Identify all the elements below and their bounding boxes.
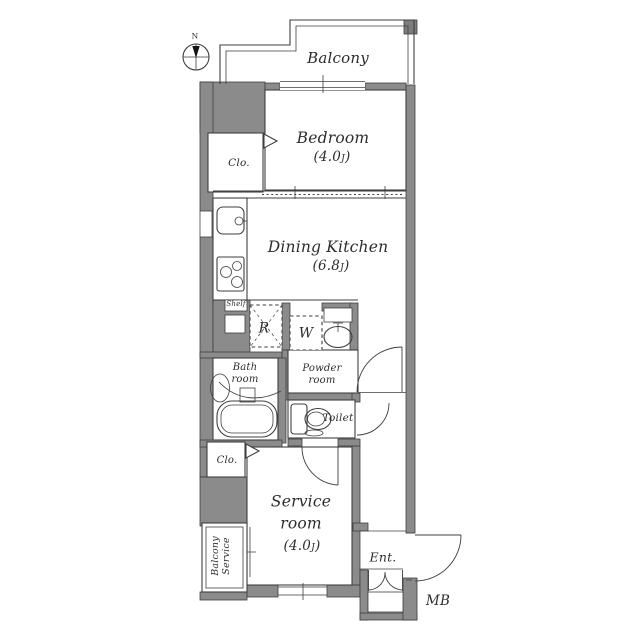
powder-room-label: Powderroom: [302, 363, 341, 387]
toilet-door: [357, 403, 389, 435]
washer-label: W: [299, 326, 314, 343]
floor-plan: Balcony N Bedroom (4.0J) Clo. Dining Kit…: [0, 0, 640, 640]
bedroom-window: [280, 79, 365, 90]
closet-lower-label: Clo.: [217, 455, 238, 467]
bedroom-area: (4.0J): [314, 150, 351, 166]
bedroom-label: Bedroom: [297, 129, 370, 147]
entrance-door: [415, 535, 461, 581]
entrance-label: Ent.: [370, 551, 397, 566]
meter-box-doors: [368, 570, 403, 612]
refrigerator-label: R: [259, 321, 270, 338]
service-room-label: Serviceroom: [271, 491, 331, 536]
dining-kitchen-area: (6.8J): [313, 259, 350, 275]
compass-north-icon: [183, 44, 209, 70]
shelf-label: Shelf: [226, 300, 245, 308]
service-room-area: (4.0J): [284, 539, 321, 555]
balcony-corner-pillar: [404, 20, 417, 34]
powder-room-door: [357, 347, 402, 392]
service-balcony-label: BalconyService: [210, 536, 232, 576]
toilet-label: Toilet: [323, 412, 354, 424]
meter-box-label: MB: [426, 594, 450, 610]
washbasin-icon: [324, 308, 352, 348]
bath-room-label: Bathroom: [231, 362, 258, 386]
closet-upper-label: Clo.: [228, 157, 250, 169]
meter-box-cabinet: [368, 592, 403, 612]
balcony-label: Balcony: [307, 50, 369, 68]
compass-north-label: N: [192, 33, 199, 42]
kitchen-window: [200, 211, 212, 237]
dining-kitchen-label: Dining Kitchen: [268, 238, 389, 256]
